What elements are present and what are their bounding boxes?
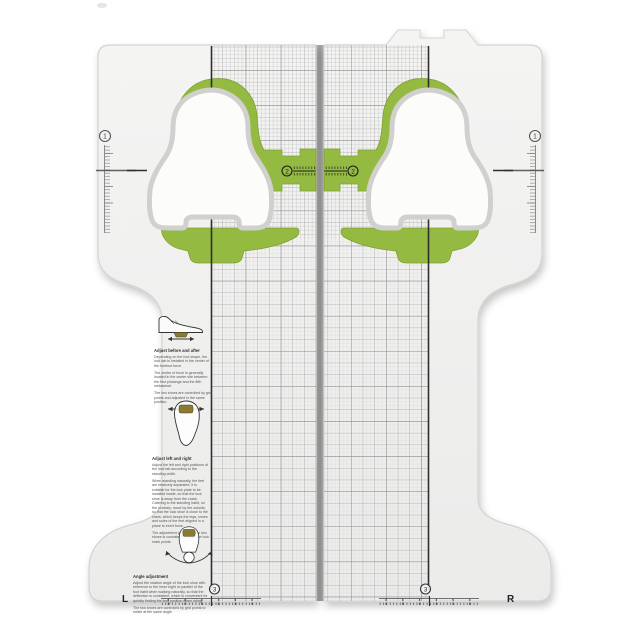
small-mark	[97, 3, 107, 8]
instruction-paragraph: Adjust the left and right positions of t…	[152, 463, 210, 476]
instruction-paragraph: Adjust the rotation angle of the lock sh…	[133, 581, 209, 603]
instruction-paragraph: Depending on the foot shape, the lock ta…	[154, 355, 212, 368]
product-photo-cleat-alignment-board: 1 1 2 2 3 3	[0, 0, 640, 640]
marker-2-right: 2	[351, 169, 355, 176]
marker-1-right: 1	[533, 134, 537, 141]
instruction-paragraph: The center of force is generally located…	[154, 371, 212, 389]
marker-2-left: 2	[285, 169, 289, 176]
instruction-caption: Angle adjustment	[133, 574, 209, 579]
right-half-label: R	[507, 594, 514, 605]
instruction-block-angle: Angle adjustment Adjust the rotation ang…	[133, 525, 209, 617]
shoe-side-icon	[154, 311, 206, 341]
marker-1-left: 1	[103, 134, 107, 141]
alignment-board-graphic: 1 1 2 2 3 3	[0, 0, 640, 640]
foot-angle-icon	[157, 525, 221, 567]
marker-3-right-group: 3	[421, 584, 431, 594]
foot-width-icon	[164, 399, 208, 449]
instruction-caption: Adjust left and right	[152, 456, 210, 461]
marker-3-right: 3	[424, 587, 428, 594]
instruction-block-fore-aft: Adjust before and after Depending on the…	[154, 311, 212, 407]
left-half-label: L	[122, 594, 128, 605]
instruction-paragraph: When standing naturally, the feet are re…	[152, 479, 210, 528]
instruction-paragraph: The two shoes are controlled by grid poi…	[133, 606, 209, 615]
marker-3-left-group: 3	[210, 584, 220, 594]
marker-3-left: 3	[213, 587, 217, 594]
instruction-caption: Adjust before and after	[154, 348, 212, 353]
